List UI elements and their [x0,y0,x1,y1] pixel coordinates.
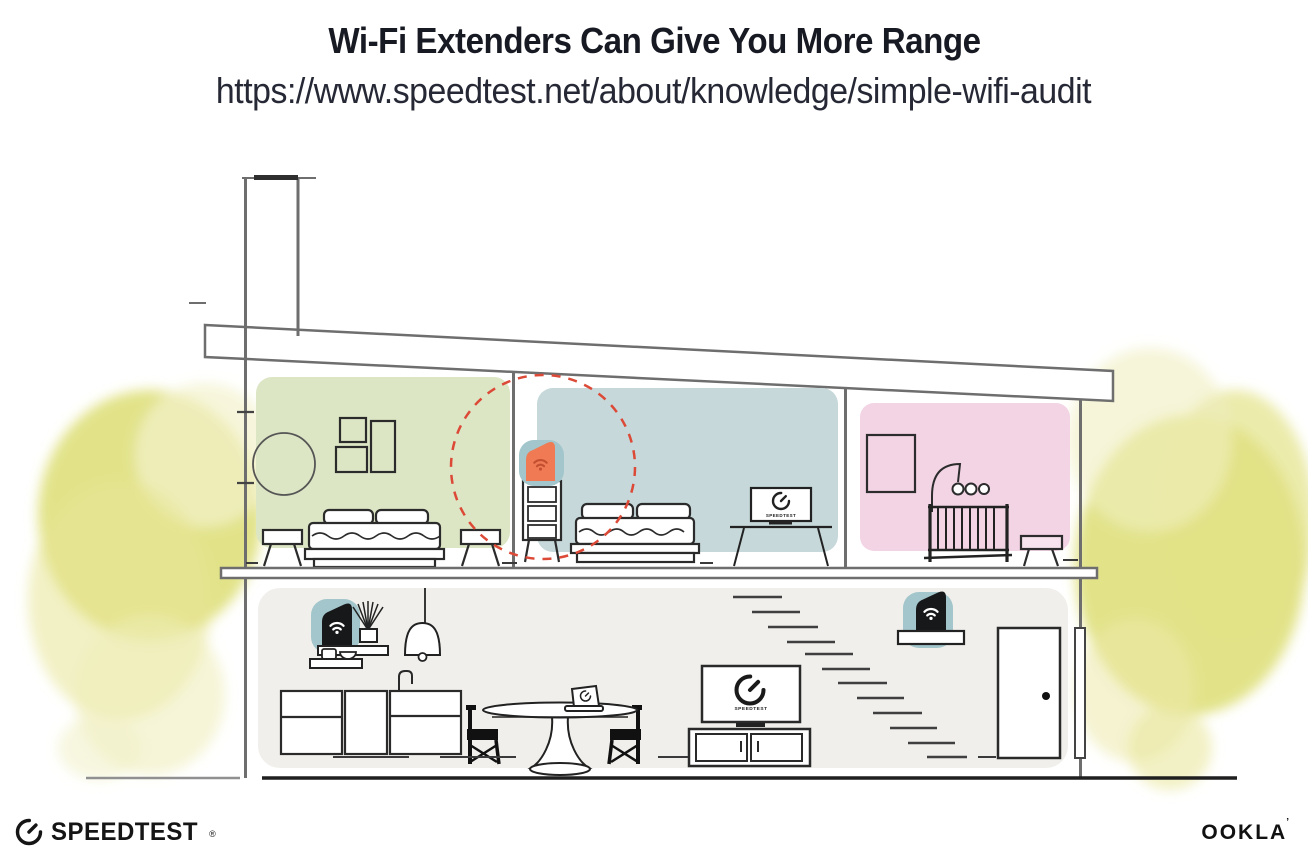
living-tv-console: SPEEDTEST [689,666,810,766]
registered-mark: ® [209,829,216,839]
ookla-logo: OOKLA’ [1201,821,1292,845]
ookla-mark: ’ [1286,817,1291,828]
tv-screen [702,666,800,722]
gauge-icon [14,817,44,847]
door-knob [1042,692,1050,700]
speedtest-wordmark: SPEEDTEST [51,818,198,847]
house-illustration: SPEEDTEST [0,0,1308,861]
tree-left [28,383,275,780]
wifi-extender-bedroom [519,440,564,486]
ookla-wordmark: OOKLA [1201,821,1287,844]
tv-base [736,723,765,727]
speedtest-logo: SPEEDTEST® [14,817,218,847]
living-tv-label: SPEEDTEST [734,706,767,712]
console-door [696,734,747,761]
bedroom-tv-label: SPEEDTEST [766,513,796,518]
floor-slab [221,568,1097,578]
door-jamb [1075,628,1085,758]
tree-right [1068,348,1308,790]
shelf-board [898,631,964,644]
room-nursery-pink [860,403,1070,551]
chimney-cap-top [254,175,298,180]
front-door [998,628,1085,758]
